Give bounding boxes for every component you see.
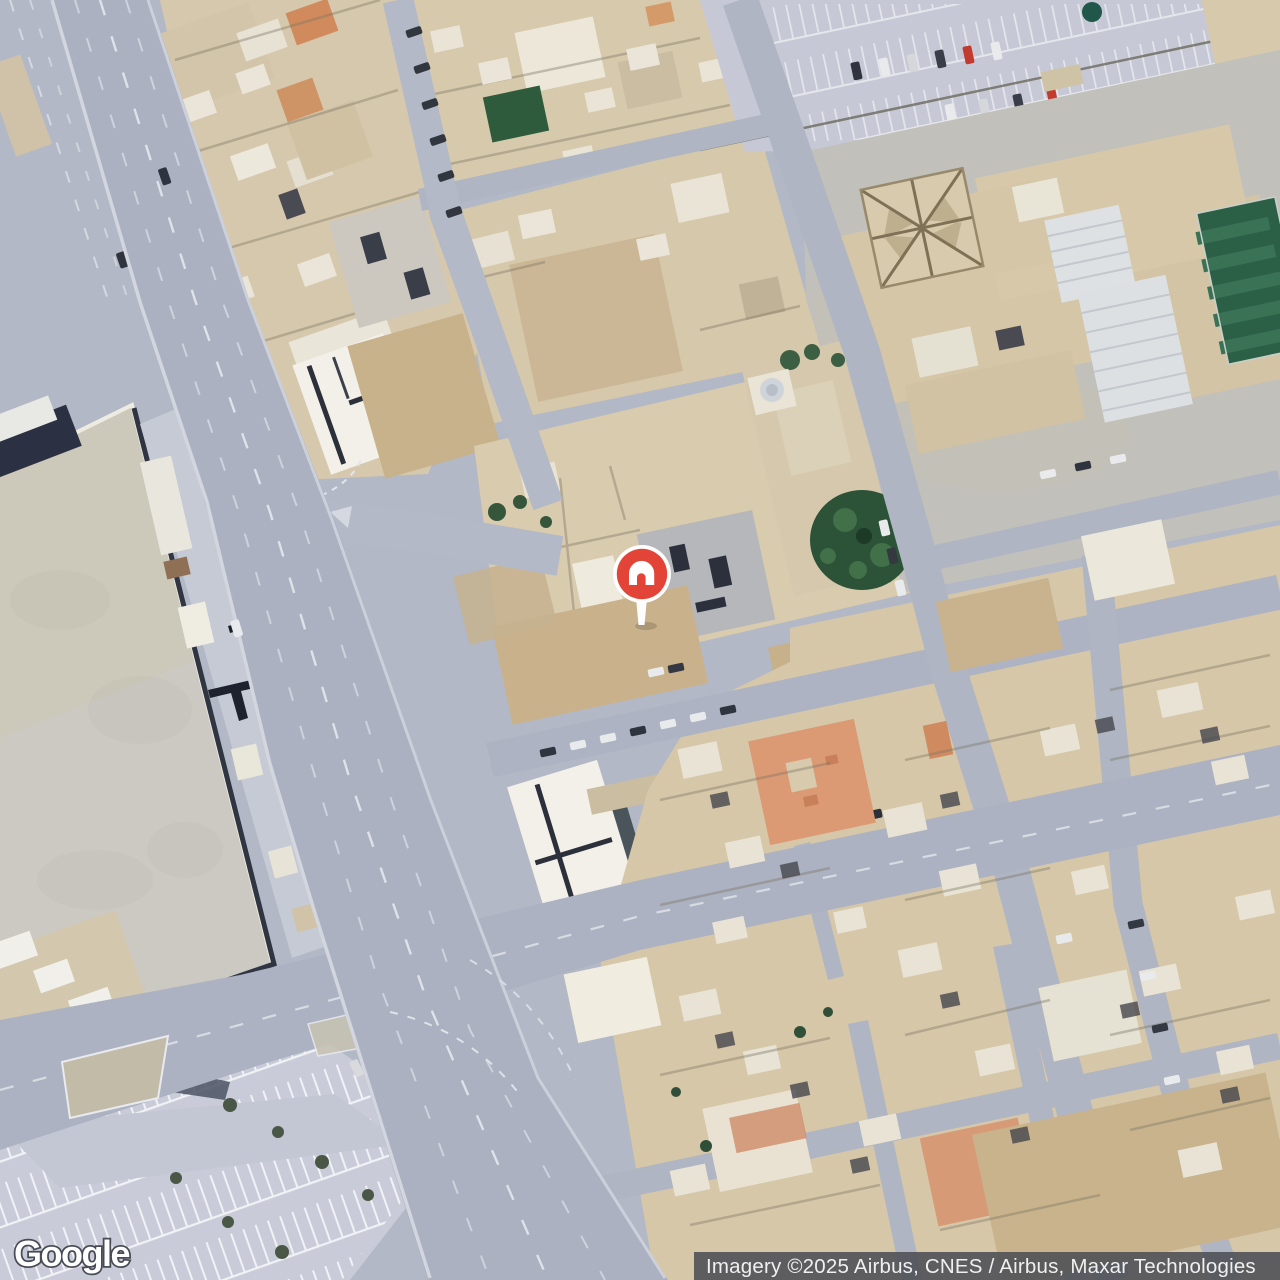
svg-text:Google: Google — [14, 1233, 129, 1274]
svg-text:Imagery ©2025 Airbus, CNES / A: Imagery ©2025 Airbus, CNES / Airbus, Max… — [706, 1255, 1256, 1278]
